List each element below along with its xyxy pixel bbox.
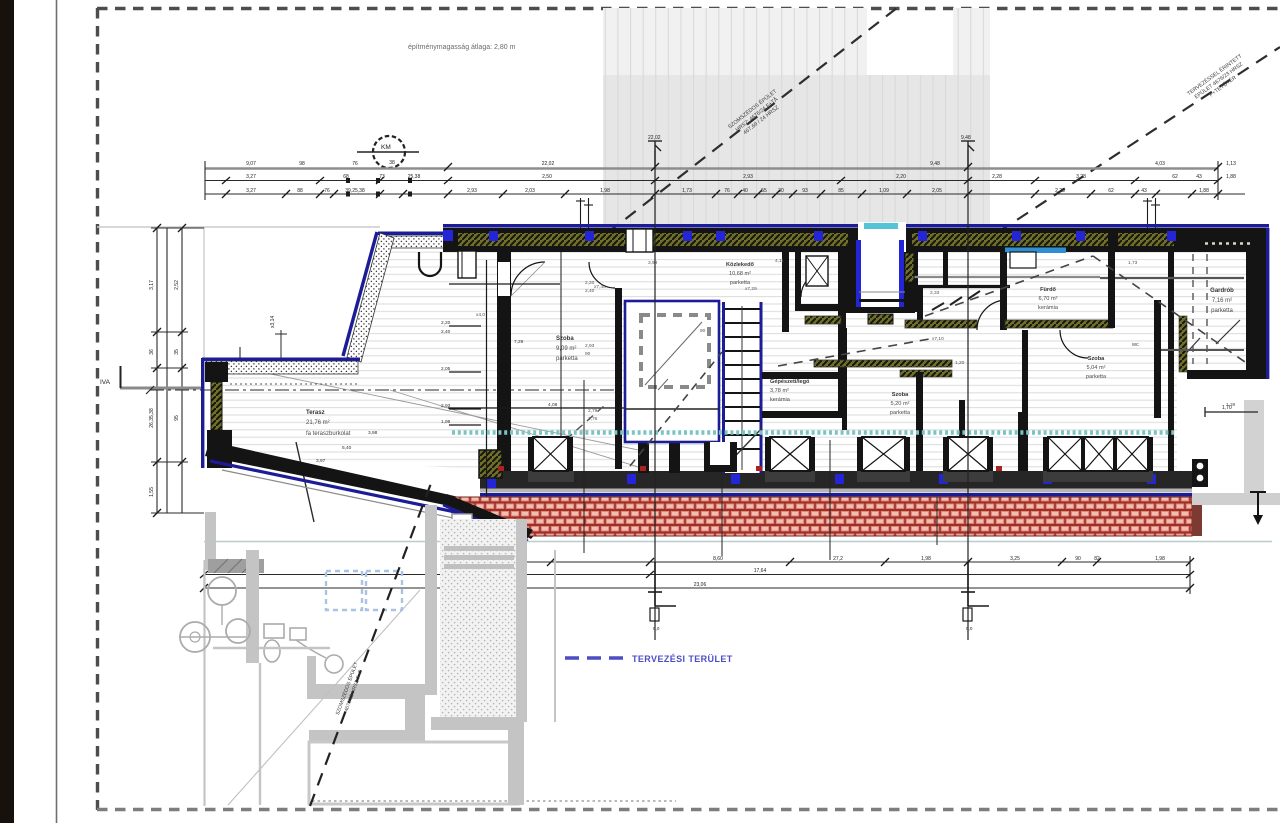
svg-text:0,0: 0,0 — [653, 626, 660, 631]
svg-text:2,93: 2,93 — [585, 343, 595, 349]
svg-text:2,28: 2,28 — [1055, 188, 1065, 194]
svg-text:9,07: 9,07 — [246, 161, 256, 167]
svg-text:90: 90 — [700, 328, 706, 334]
svg-text:5,04 m²: 5,04 m² — [1087, 365, 1106, 371]
svg-text:9,48: 9,48 — [961, 135, 971, 141]
svg-text:76: 76 — [352, 161, 358, 167]
svg-text:1,55: 1,55 — [149, 487, 155, 497]
svg-text:építménymagasság átlaga: 2,80: építménymagasság átlaga: 2,80 m — [408, 44, 516, 51]
svg-text:2,93: 2,93 — [441, 403, 451, 409]
svg-text:9,48: 9,48 — [930, 161, 940, 167]
svg-text:17,64: 17,64 — [754, 568, 767, 574]
svg-text:wc: wc — [1131, 342, 1139, 348]
svg-text:3,17: 3,17 — [149, 280, 155, 290]
svg-text:2,03: 2,03 — [525, 188, 535, 194]
svg-text:1,09: 1,09 — [879, 188, 889, 194]
svg-text:3,78 m²: 3,78 m² — [770, 388, 789, 394]
svg-text:85: 85 — [838, 188, 844, 194]
svg-text:21,76 m²: 21,76 m² — [306, 420, 330, 426]
svg-text:2,28: 2,28 — [992, 174, 1002, 180]
svg-text:0,0: 0,0 — [966, 626, 973, 631]
svg-text:fa teraszburkolat: fa teraszburkolat — [306, 431, 351, 437]
svg-text:8,60: 8,60 — [713, 556, 723, 562]
svg-text:10,68 m²: 10,68 m² — [729, 271, 751, 277]
svg-text:2,79: 2,79 — [588, 408, 598, 414]
svg-text:x3,14: x3,14 — [270, 316, 276, 328]
svg-text:38: 38 — [389, 160, 395, 166]
svg-text:1,73: 1,73 — [1128, 260, 1138, 266]
svg-text:Szoba: Szoba — [892, 392, 909, 398]
svg-text:3,98: 3,98 — [368, 430, 378, 436]
svg-text:3,28: 3,28 — [1076, 174, 1086, 180]
svg-text:1,13: 1,13 — [1226, 161, 1236, 167]
svg-text:IVA: IVA — [100, 379, 111, 386]
svg-text:2,33: 2,33 — [930, 290, 940, 296]
svg-text:parketta: parketta — [1086, 374, 1107, 380]
svg-text:2,76: 2,76 — [588, 416, 598, 422]
svg-text:6,70 m²: 6,70 m² — [1039, 296, 1058, 302]
svg-text:2,20: 2,20 — [441, 320, 451, 326]
svg-text:Szoba: Szoba — [1088, 356, 1105, 362]
svg-text:TERVEZÉSI TERÜLET: TERVEZÉSI TERÜLET — [632, 654, 733, 664]
svg-text:1,73: 1,73 — [682, 188, 692, 194]
svg-text:kerámia: kerámia — [1038, 305, 1059, 311]
svg-text:x7,10: x7,10 — [932, 336, 944, 342]
svg-text:2,93: 2,93 — [743, 174, 753, 180]
svg-text:3,27: 3,27 — [246, 174, 256, 180]
svg-text:7,16 m²: 7,16 m² — [1212, 298, 1232, 304]
svg-text:x7,29: x7,29 — [745, 286, 757, 292]
svg-text:7,29: 7,29 — [514, 339, 524, 345]
svg-text:2,93: 2,93 — [467, 188, 477, 194]
svg-text:35: 35 — [174, 349, 180, 355]
svg-text:27,2: 27,2 — [833, 556, 843, 562]
svg-text:4,08: 4,08 — [548, 402, 558, 408]
svg-text:2,05: 2,05 — [441, 366, 451, 372]
svg-text:parketta: parketta — [730, 280, 751, 286]
svg-text:parketta: parketta — [556, 356, 578, 362]
svg-text:62: 62 — [1172, 174, 1178, 180]
svg-text:22,02: 22,02 — [542, 161, 555, 167]
svg-text:40: 40 — [742, 188, 748, 194]
svg-text:36: 36 — [149, 349, 155, 355]
svg-text:43: 43 — [1196, 174, 1202, 180]
svg-text:23,06: 23,06 — [694, 582, 707, 588]
svg-text:4,11: 4,11 — [775, 258, 784, 264]
svg-text:1,20: 1,20 — [955, 360, 965, 366]
svg-text:3,97: 3,97 — [316, 458, 326, 464]
svg-text:1,88: 1,88 — [1226, 174, 1236, 180]
svg-text:x4,0: x4,0 — [476, 312, 485, 318]
svg-text:62: 62 — [1108, 188, 1114, 194]
svg-text:2,20: 2,20 — [896, 174, 906, 180]
svg-text:82: 82 — [1094, 556, 1100, 562]
svg-text:KM: KM — [381, 144, 391, 151]
svg-text:kerámia: kerámia — [770, 397, 791, 403]
svg-text:2,05: 2,05 — [932, 188, 942, 194]
svg-text:73: 73 — [379, 174, 385, 180]
svg-text:5,40: 5,40 — [342, 445, 352, 451]
svg-text:1,88: 1,88 — [1199, 188, 1209, 194]
svg-text:Közlekedő: Közlekedő — [726, 262, 755, 268]
svg-text:x7,46: x7,46 — [594, 284, 606, 290]
svg-text:76: 76 — [324, 188, 330, 194]
svg-text:Terasz: Terasz — [306, 410, 325, 416]
svg-text:1,98: 1,98 — [1155, 556, 1165, 562]
svg-text:90: 90 — [1075, 556, 1081, 562]
svg-text:22,02: 22,02 — [648, 135, 661, 141]
svg-text:Gardrób: Gardrób — [1210, 288, 1234, 294]
svg-text:26,35,38: 26,35,38 — [149, 408, 155, 428]
svg-text:55: 55 — [761, 188, 767, 194]
svg-text:2,52: 2,52 — [174, 280, 180, 290]
svg-text:93: 93 — [802, 188, 808, 194]
svg-text:95: 95 — [174, 415, 180, 421]
svg-text:parketta: parketta — [1211, 308, 1233, 314]
svg-text:88: 88 — [297, 188, 303, 194]
svg-text:3,93: 3,93 — [648, 260, 658, 266]
svg-text:1,98: 1,98 — [921, 556, 931, 562]
svg-text:90: 90 — [585, 351, 591, 357]
svg-text:4,03: 4,03 — [1155, 161, 1165, 167]
svg-text:parketta: parketta — [890, 410, 911, 416]
svg-text:2,40: 2,40 — [441, 329, 451, 335]
svg-text:76: 76 — [724, 188, 730, 194]
svg-text:1,98: 1,98 — [600, 188, 610, 194]
svg-text:5,20 m²: 5,20 m² — [891, 401, 910, 407]
svg-text:30: 30 — [778, 188, 784, 194]
svg-text:2,50: 2,50 — [542, 174, 552, 180]
svg-text:1,98: 1,98 — [441, 419, 451, 425]
svg-text:9,09 m²: 9,09 m² — [556, 346, 576, 352]
svg-text:Gépészeti/legó: Gépészeti/legó — [770, 379, 810, 385]
svg-text:Szoba: Szoba — [556, 336, 574, 342]
svg-text:1,39: 1,39 — [1226, 402, 1236, 408]
svg-text:3,27: 3,27 — [246, 188, 256, 194]
svg-text:43: 43 — [1141, 188, 1147, 194]
svg-text:Fürdő: Fürdő — [1040, 287, 1056, 293]
svg-text:98: 98 — [299, 161, 305, 167]
svg-text:3,25: 3,25 — [1010, 556, 1020, 562]
